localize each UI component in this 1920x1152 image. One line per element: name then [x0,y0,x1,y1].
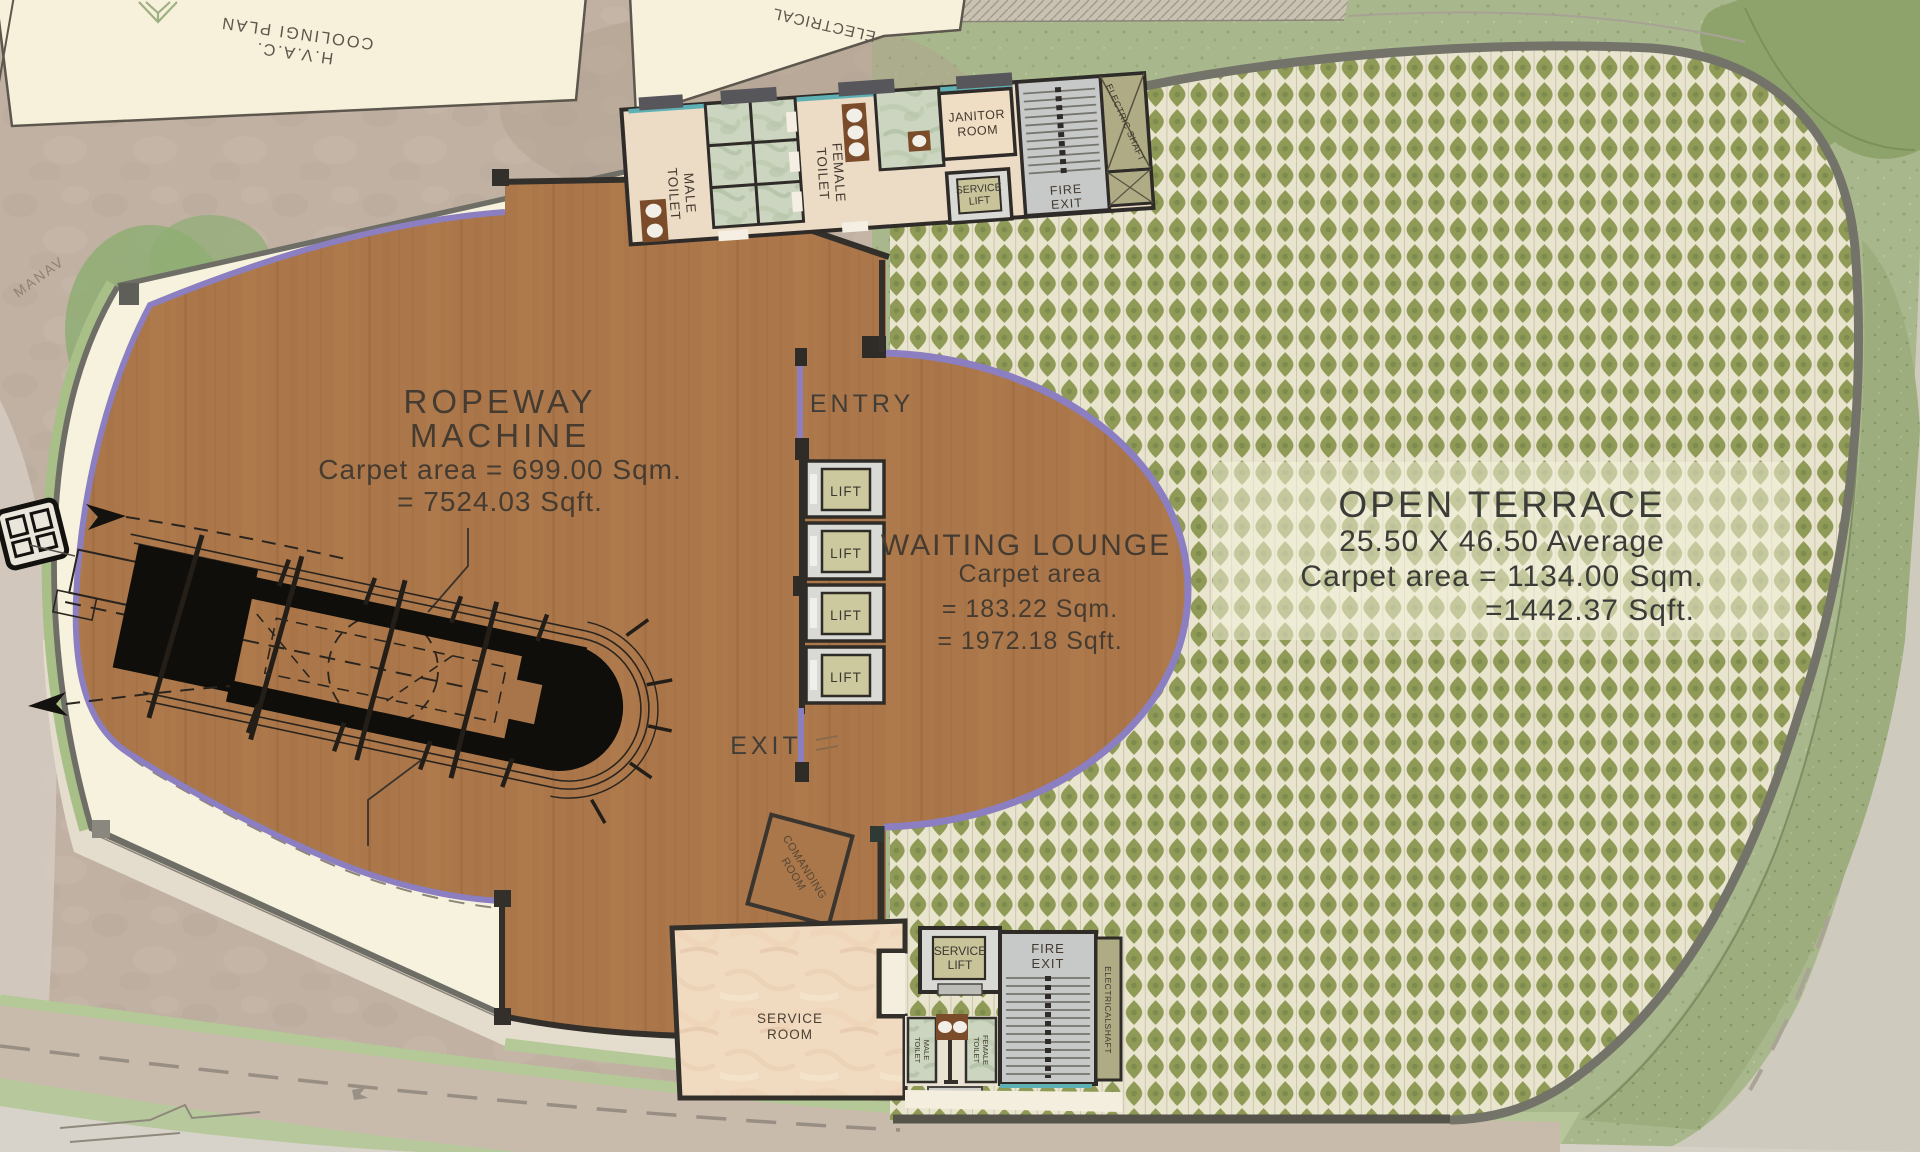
svg-text:LIFT: LIFT [830,670,862,685]
svg-text:LIFT: LIFT [948,958,973,972]
svg-text:EXIT: EXIT [730,732,802,760]
svg-text:= 183.22 Sqm.: = 183.22 Sqm. [942,595,1118,623]
svg-text:LIFT: LIFT [968,194,991,208]
svg-text:WAITING LOUNGE: WAITING LOUNGE [881,529,1171,562]
svg-text:OPEN TERRACE: OPEN TERRACE [1338,484,1665,525]
svg-text:MALE: MALE [922,1040,931,1060]
svg-text:TOILET: TOILET [913,1037,922,1064]
svg-text:SERVICE: SERVICE [934,944,986,958]
svg-text:LIFT: LIFT [830,546,862,561]
svg-text:ROPEWAY: ROPEWAY [403,383,596,420]
svg-text:LIFT: LIFT [830,608,862,623]
svg-text:Carpet area = 1134.00 Sqm.: Carpet area = 1134.00 Sqm. [1300,560,1703,593]
svg-text:LIFT: LIFT [830,484,862,499]
svg-text:=1442.37 Sqft.: =1442.37 Sqft. [1485,594,1695,627]
svg-text:ROOM: ROOM [957,123,999,140]
svg-text:FIRE: FIRE [1031,941,1065,956]
svg-text:MALE: MALE [681,172,699,214]
svg-text:MACHINE: MACHINE [410,417,590,454]
svg-text:EXIT: EXIT [1032,956,1065,971]
svg-text:Carpet area = 699.00 Sqm.: Carpet area = 699.00 Sqm. [318,454,682,485]
svg-text:= 1972.18 Sqft.: = 1972.18 Sqft. [937,627,1122,655]
svg-text:EXIT: EXIT [1051,196,1084,212]
svg-text:TOILET: TOILET [972,1037,981,1064]
svg-text:25.50 X 46.50 Average: 25.50 X 46.50 Average [1339,525,1665,558]
svg-text:SERVICE: SERVICE [757,1011,823,1026]
svg-text:= 7524.03 Sqft.: = 7524.03 Sqft. [397,486,603,517]
svg-text:ENTRY: ENTRY [810,390,914,418]
svg-text:ROOM: ROOM [767,1027,813,1042]
svg-text:FEMALE: FEMALE [981,1035,990,1065]
svg-text:Carpet area: Carpet area [958,560,1101,588]
svg-text:ELECTRICALSHAFT: ELECTRICALSHAFT [1103,966,1113,1054]
